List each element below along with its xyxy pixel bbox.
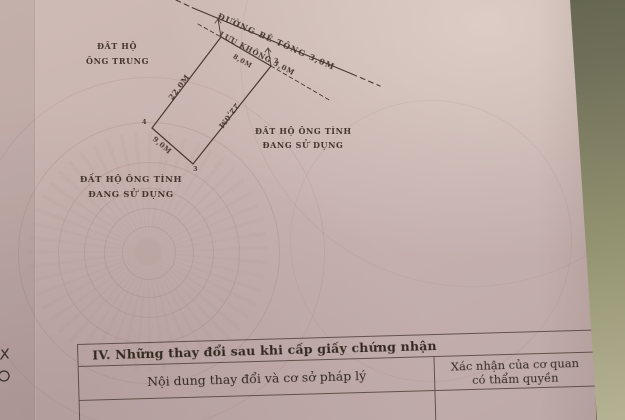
- neighbor-bottom-line1: ĐẤT HỘ ÔNG TÌNH: [66, 173, 196, 188]
- road-dash-left: [176, 0, 193, 8]
- section-iv-table: IV. Những thay đổi sau khi cấp giấy chứn…: [77, 330, 598, 420]
- column-header-confirmation: Xác nhận của cơ quan có thẩm quyền: [434, 353, 595, 390]
- neighbor-label-bottom: ĐẤT HỘ ÔNG TÌNH ĐANG SỬ DỤNG: [66, 173, 196, 203]
- neighbor-label-left: ĐẤT HỘ ÔNG TRUNG: [86, 39, 148, 69]
- neighbor-right-line1: ĐẤT HỘ ÔNG TÌNH: [255, 124, 351, 138]
- corner-number-4: 4: [142, 118, 147, 126]
- corner-number-3: 3: [193, 165, 198, 173]
- corner-number-2: 2: [274, 57, 279, 65]
- setback-dash-left: [198, 24, 221, 37]
- confirmation-line2: có thẩm quyền: [472, 370, 559, 386]
- neighbor-left-line1: ĐẤT HỘ: [86, 39, 148, 54]
- neighbor-right-line2: ĐANG SỬ DỤNG: [255, 138, 351, 152]
- photo-background: ĐƯỜNG BÊ TÔNG 3,0M LƯU KHÔNG 3,0M 8,0M 2…: [0, 0, 625, 420]
- empty-cell-confirmation: [435, 387, 597, 420]
- edge-handwriting-mark: [1, 349, 8, 359]
- edge-handwriting-mark: [0, 371, 9, 381]
- neighbor-label-right: ĐẤT HỘ ÔNG TÌNH ĐANG SỬ DỤNG: [255, 124, 351, 152]
- road-dash-right: [352, 74, 380, 86]
- neighbor-bottom-line2: ĐANG SỬ DỤNG: [66, 188, 196, 203]
- certificate-page: ĐƯỜNG BÊ TÔNG 3,0M LƯU KHÔNG 3,0M 8,0M 2…: [0, 0, 625, 420]
- neighbor-left-line2: ÔNG TRUNG: [86, 54, 148, 69]
